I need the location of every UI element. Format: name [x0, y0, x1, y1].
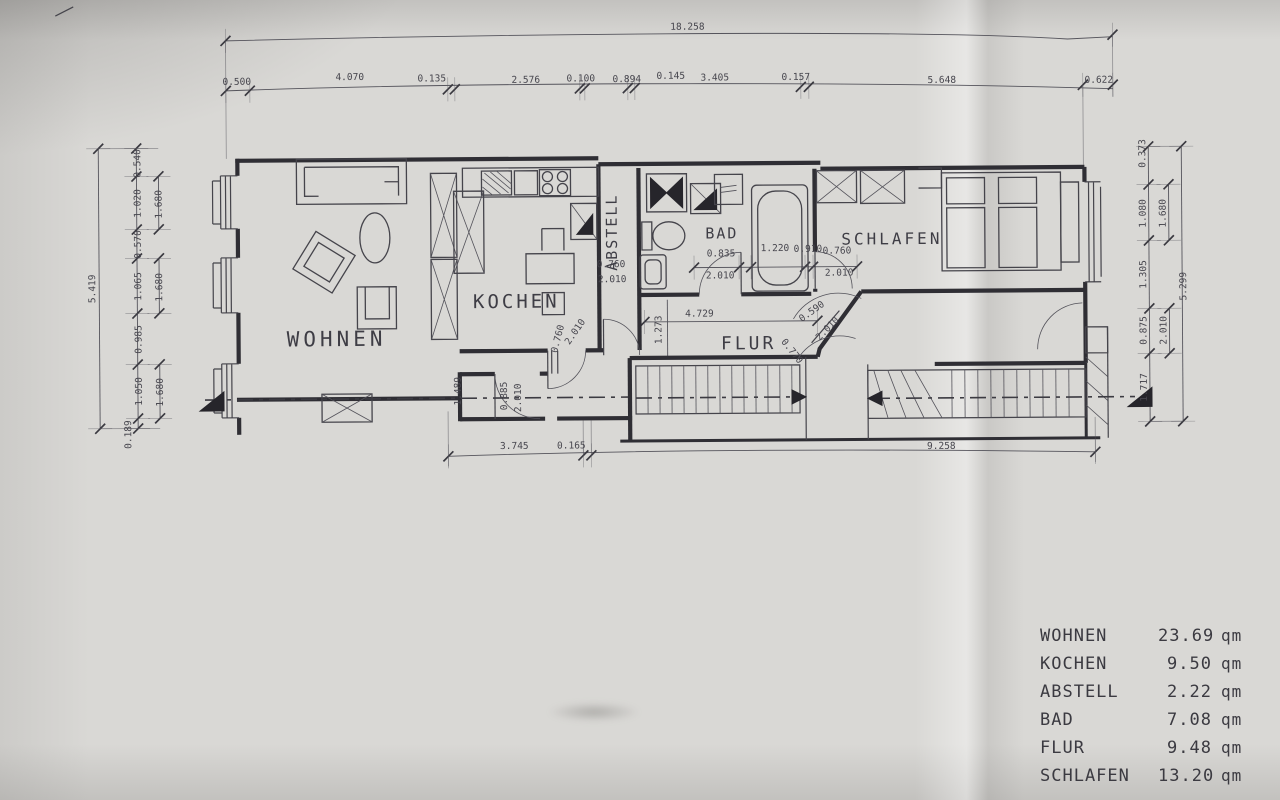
shafts-and-closets: [320, 169, 1108, 443]
chair: [357, 287, 396, 329]
dim-label: 1.717: [1139, 373, 1150, 402]
stair-flight-right: [868, 369, 1086, 419]
dim-label: 3.405: [700, 72, 729, 83]
dim-label: 4.070: [335, 72, 364, 83]
dim-label: 0.145: [656, 71, 685, 82]
entrance-triangle-left: [200, 392, 224, 411]
landing-door-arc: [1037, 303, 1082, 349]
dim-label: 1.020: [133, 189, 144, 218]
dim-label: 1.680: [154, 190, 165, 219]
dim-label: 0.770: [778, 337, 805, 366]
dim-label: 1.065: [133, 272, 144, 301]
dim-label: 0.570: [133, 230, 144, 259]
room-name: ABSTELL: [1040, 682, 1158, 702]
walk-arrow-left: [868, 391, 882, 405]
wohnen-furniture: [292, 159, 407, 330]
room-name: FLUR: [1040, 738, 1158, 758]
dim-label: 1.220: [761, 243, 790, 254]
dim-label: 1.080: [1138, 199, 1149, 228]
dim-label: 0.135: [417, 73, 446, 84]
dim-label: 2.010: [563, 317, 588, 347]
dim-label: 0.885: [499, 382, 510, 411]
area-unit: qm: [1221, 738, 1242, 757]
room-label: SCHLAFEN: [841, 229, 942, 249]
landing-box: [1086, 327, 1108, 353]
room-label: ABSTELL: [603, 194, 622, 271]
mattress: [999, 207, 1037, 267]
walk-arrow-right: [792, 390, 806, 404]
dim-label: 0.622: [1084, 75, 1113, 86]
room-area: 7.08: [1158, 710, 1212, 730]
pillow: [998, 177, 1036, 203]
double-bed: [941, 172, 1061, 271]
room-name: WOHNEN: [1040, 626, 1158, 646]
kitchen-table: [526, 253, 574, 283]
room-area: 13.20: [1158, 766, 1212, 786]
walk-line: [874, 397, 1135, 399]
doors: [494, 250, 1083, 419]
dim-label: 1.273: [653, 316, 664, 345]
dim-label: 0.165: [557, 440, 586, 451]
dim-label: 0.500: [222, 77, 251, 88]
dim-label: 3.745: [500, 441, 529, 452]
dim-label: 2.010: [513, 383, 524, 412]
room-name: BAD: [1040, 710, 1158, 730]
dim-label: 1.489: [453, 377, 464, 406]
dim-label: 5.419: [87, 274, 98, 303]
scan-corner-mark: [55, 7, 73, 16]
area-unit: qm: [1221, 766, 1242, 785]
winder-treads: [874, 370, 942, 418]
dim-label: 0.910: [794, 244, 823, 255]
sink: [514, 171, 537, 195]
dim-label: 0.875: [1138, 316, 1149, 345]
room-name: SCHLAFEN: [1040, 766, 1158, 786]
dim-label: 2.576: [511, 75, 540, 86]
burner: [542, 184, 552, 194]
dim-label: 0.189: [123, 420, 134, 449]
dim-label: 1.680: [1158, 199, 1169, 228]
dim-label: 2.010: [706, 270, 735, 281]
dim-label: 18.258: [670, 22, 705, 33]
dim-label: 2.010: [825, 268, 854, 279]
room-area: 23.69: [1158, 626, 1212, 646]
bedside-shelf: [1060, 182, 1079, 262]
scanned-floorplan-sheet: 18.2580.5004.0700.1352.5760.1000.8940.14…: [0, 0, 1280, 800]
area-row-schlafen: SCHLAFEN 13.20 qm: [1040, 766, 1242, 794]
side-table: [918, 168, 941, 188]
burner: [557, 184, 567, 194]
room-label: KOCHEN: [473, 291, 560, 314]
dim-label: 0.835: [707, 248, 736, 259]
burner: [557, 172, 567, 182]
pillow: [946, 178, 984, 204]
area-unit: qm: [1221, 654, 1242, 673]
area-row-flur: FLUR 9.48 qm: [1040, 738, 1242, 766]
washing-machine: [714, 174, 742, 204]
burner: [542, 172, 552, 182]
walk-line: [636, 397, 790, 398]
toilet-cistern: [642, 222, 652, 250]
area-row-abstell: ABSTELL 2.22 qm: [1040, 682, 1242, 710]
schlafen-furniture: [918, 167, 1079, 271]
coffee-table: [360, 213, 390, 263]
area-row-wohnen: WOHNEN 23.69 qm: [1040, 626, 1242, 654]
dim-label: 9.258: [927, 441, 956, 452]
dim-label: 2.010: [1158, 316, 1169, 345]
kochen-door-arc: [548, 350, 586, 388]
staircase: [205, 363, 1135, 423]
dim-label: 4.729: [685, 308, 714, 319]
area-unit: qm: [1221, 710, 1242, 729]
dim-label: 0.540: [132, 149, 143, 178]
dim-label: 1.305: [1138, 260, 1149, 289]
area-row-bad: BAD 7.08 qm: [1040, 710, 1242, 738]
mattress: [947, 208, 985, 268]
room-label: FLUR: [721, 333, 777, 354]
armchair: [293, 231, 355, 293]
area-unit: qm: [1221, 682, 1242, 701]
room-name: KOCHEN: [1040, 654, 1158, 674]
room-label: BAD: [705, 224, 738, 242]
room-area: 9.50: [1158, 654, 1212, 674]
room-area: 2.22: [1158, 682, 1212, 702]
dim-label: 0.894: [612, 74, 641, 85]
area-row-kochen: KOCHEN 9.50 qm: [1040, 654, 1242, 682]
dim-label: 1.680: [154, 273, 165, 302]
dim-label: 0.100: [566, 73, 595, 84]
dim-label: 2.010: [598, 274, 627, 285]
dim-label: 0.985: [133, 325, 144, 354]
abstell-door-arc: [603, 319, 639, 355]
dim-label: 1.050: [134, 377, 145, 406]
dim-label: 0.157: [781, 72, 810, 83]
room-label: WOHNEN: [287, 327, 387, 352]
area-unit: qm: [1221, 626, 1242, 645]
area-table: WOHNEN 23.69 qm KOCHEN 9.50 qm ABSTELL 2…: [1040, 626, 1242, 794]
toilet-bowl: [653, 222, 685, 250]
dim-label: 5.648: [927, 75, 956, 86]
dim-label: 1.680: [155, 378, 166, 407]
dim-label: 0.373: [1137, 139, 1148, 168]
room-area: 9.48: [1158, 738, 1212, 758]
dim-label: 5.299: [1178, 272, 1189, 301]
